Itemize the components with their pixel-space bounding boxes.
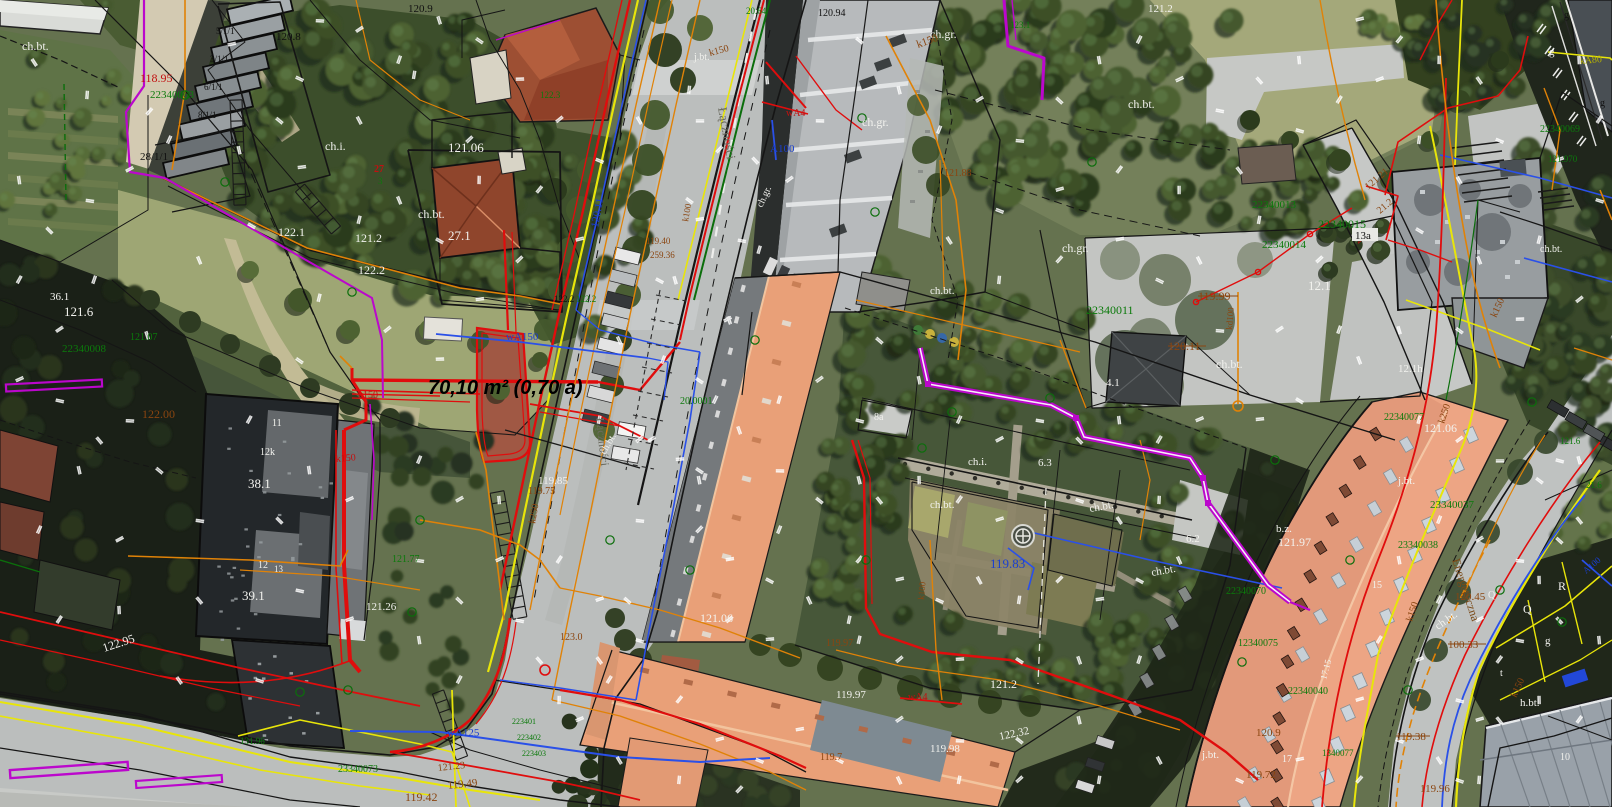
svg-text:k150: k150 [335, 452, 356, 465]
svg-text:27.1: 27.1 [448, 228, 471, 243]
svg-text:121.88: 121.88 [944, 168, 972, 179]
svg-text:119.96: 119.96 [1420, 783, 1450, 795]
svg-text:121.970: 121.970 [1548, 154, 1578, 164]
svg-text:ch.bt.: ch.bt. [22, 39, 49, 53]
svg-text:100.33: 100.33 [1448, 639, 1479, 651]
svg-text:6/1/1: 6/1/1 [204, 82, 223, 92]
svg-text:13: 13 [274, 564, 284, 574]
svg-text:39.1: 39.1 [242, 588, 265, 603]
svg-text:121.77: 121.77 [392, 554, 420, 565]
svg-text:3/1/1: 3/1/1 [210, 54, 229, 64]
svg-text:13a: 13a [1355, 230, 1371, 242]
svg-text:ch.i.: ch.i. [325, 139, 346, 153]
svg-text:22340063: 22340063 [150, 89, 195, 101]
svg-text:120.94: 120.94 [818, 8, 846, 19]
svg-text:12.1h: 12.1h [1398, 363, 1423, 375]
svg-text:g: g [1564, 10, 1569, 21]
svg-text:121.2: 121.2 [355, 231, 382, 245]
svg-text:wA150: wA150 [506, 331, 539, 343]
svg-text:22340069: 22340069 [1540, 124, 1580, 135]
svg-text:6.2: 6.2 [1186, 533, 1200, 545]
svg-text:120.45: 120.45 [1455, 591, 1486, 603]
svg-text:23340038: 23340038 [1398, 540, 1438, 551]
svg-text:122.2: 122.2 [576, 294, 596, 304]
svg-text:kA80: kA80 [1579, 54, 1602, 67]
svg-text:121.07: 121.07 [130, 332, 158, 343]
svg-text:121.2: 121.2 [1148, 3, 1173, 15]
svg-text:k150: k150 [358, 390, 378, 401]
svg-text:15: 15 [1372, 580, 1382, 591]
svg-text:223402: 223402 [517, 733, 541, 742]
svg-text:36.1: 36.1 [50, 291, 69, 303]
svg-text:223401: 223401 [512, 717, 536, 726]
svg-text:20.64: 20.64 [746, 6, 767, 16]
svg-text:ch.bt.: ch.bt. [930, 285, 955, 297]
svg-text:122.00: 122.00 [142, 407, 175, 421]
svg-text:119.97: 119.97 [836, 689, 866, 701]
svg-text:121.06: 121.06 [448, 140, 484, 155]
svg-text:122.3: 122.3 [540, 90, 561, 100]
svg-text:Q: Q [1523, 602, 1532, 616]
svg-text:10: 10 [1560, 752, 1570, 763]
svg-text:223403: 223403 [522, 749, 546, 758]
svg-text:g: g [1545, 635, 1551, 647]
svg-text:121.6: 121.6 [1560, 436, 1581, 446]
svg-text:k100: k100 [916, 581, 928, 600]
svg-text:wA4: wA4 [908, 692, 927, 703]
svg-text:22340040: 22340040 [1288, 686, 1328, 697]
svg-text:3: 3 [378, 176, 383, 186]
svg-text:ch.gr.: ch.gr. [862, 115, 889, 129]
svg-text:22340070: 22340070 [1226, 586, 1266, 597]
svg-text:17: 17 [1282, 754, 1292, 765]
svg-text:122.1: 122.1 [278, 225, 305, 239]
svg-text:12k: 12k [260, 447, 275, 458]
svg-text:119.40: 119.40 [646, 236, 671, 246]
svg-text:5/1/1: 5/1/1 [216, 26, 235, 36]
svg-text:12.1: 12.1 [1308, 278, 1331, 293]
svg-text:ch.i.: ch.i. [968, 456, 987, 468]
svg-text:ch.bt.: ch.bt. [930, 499, 955, 511]
svg-text:kd100: kd100 [1224, 306, 1236, 330]
svg-text:119.75: 119.75 [528, 486, 555, 497]
svg-text:22340013: 22340013 [1252, 199, 1297, 211]
svg-text:123.0: 123.0 [560, 632, 583, 643]
svg-text:119.42: 119.42 [405, 790, 438, 804]
svg-text:8/1/1: 8/1/1 [198, 110, 217, 120]
svg-text:22340008: 22340008 [62, 343, 107, 355]
svg-text:ch.gr.: ch.gr. [1062, 241, 1089, 255]
svg-text:t: t [1500, 668, 1503, 679]
svg-text:22340014: 22340014 [1262, 239, 1307, 251]
svg-text:ch.bt.: ch.bt. [1540, 244, 1562, 255]
svg-text:123.1: 123.1 [1010, 20, 1030, 30]
svg-text:ch.bt.: ch.bt. [1216, 357, 1243, 371]
svg-text:27: 27 [374, 164, 384, 175]
svg-text:119.72: 119.72 [1246, 769, 1276, 781]
svg-text:121.6: 121.6 [64, 304, 94, 319]
svg-text:119.98: 119.98 [930, 743, 960, 755]
svg-text:wA125: wA125 [447, 727, 480, 739]
svg-text:22340077: 22340077 [1384, 412, 1424, 423]
svg-text:21.6: 21.6 [1586, 480, 1602, 490]
svg-text:120.8: 120.8 [276, 31, 301, 43]
svg-text:23340073: 23340073 [338, 764, 378, 775]
svg-text:70,10 m² (0,70 a): 70,10 m² (0,70 a) [428, 377, 583, 399]
svg-text:ch.bt.: ch.bt. [1128, 97, 1155, 111]
svg-text:120.9: 120.9 [408, 3, 433, 15]
svg-text:121.26: 121.26 [366, 601, 397, 613]
svg-text:122.2: 122.2 [554, 294, 574, 304]
svg-text:j.bt.: j.bt. [693, 52, 710, 63]
svg-text:h.bt.: h.bt. [1520, 697, 1540, 709]
svg-text:11: 11 [272, 418, 282, 429]
svg-text:121.06: 121.06 [700, 611, 733, 625]
svg-text:122.2: 122.2 [358, 263, 385, 277]
svg-text:12: 12 [258, 560, 268, 571]
svg-text:A100: A100 [770, 143, 795, 155]
svg-text:R: R [1558, 579, 1566, 593]
svg-text:119.97: 119.97 [826, 638, 853, 649]
svg-text:8a: 8a [874, 412, 884, 423]
svg-text:28/1/1: 28/1/1 [140, 151, 168, 163]
svg-text:120.9: 120.9 [1256, 727, 1281, 739]
svg-text:259.36: 259.36 [650, 250, 675, 260]
svg-text:119.38: 119.38 [1396, 731, 1426, 743]
svg-text:6.3: 6.3 [1038, 457, 1052, 469]
svg-text:Q: Q [1488, 590, 1496, 601]
svg-text:118.95: 118.95 [140, 71, 173, 85]
svg-text:b.z.: b.z. [1276, 523, 1292, 535]
svg-text:20.0001: 20.0001 [680, 396, 713, 407]
svg-text:131.96: 131.96 [240, 736, 265, 746]
svg-text:121.2: 121.2 [990, 677, 1017, 691]
svg-text:119.7: 119.7 [820, 752, 842, 763]
svg-text:ch.bt.: ch.bt. [418, 207, 445, 221]
svg-text:121.97: 121.97 [1278, 535, 1311, 549]
svg-text:22340011: 22340011 [1086, 303, 1134, 317]
svg-text:23340037: 23340037 [1430, 499, 1475, 511]
svg-text:1340077: 1340077 [1322, 748, 1354, 758]
svg-text:g: g [1600, 98, 1605, 109]
svg-text:119.83: 119.83 [990, 556, 1025, 571]
svg-text:j.bt.: j.bt. [1201, 749, 1219, 761]
svg-text:4.1: 4.1 [1106, 377, 1120, 389]
svg-text:j.bt.: j.bt. [1397, 475, 1415, 487]
svg-text:wA4: wA4 [786, 108, 805, 119]
svg-text:38.1: 38.1 [248, 476, 271, 491]
svg-text:12340075: 12340075 [1238, 638, 1278, 649]
